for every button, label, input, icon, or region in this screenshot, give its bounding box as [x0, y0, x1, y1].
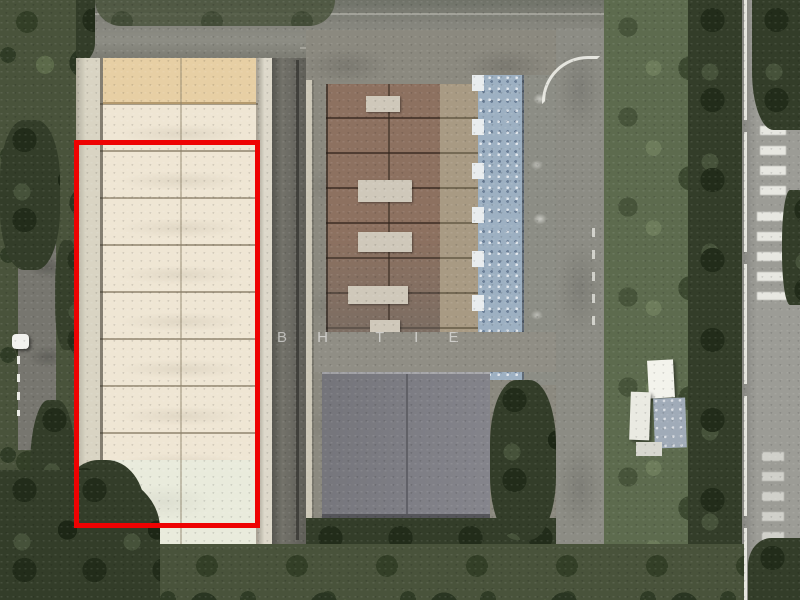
brown-warehouse-roof	[326, 84, 440, 332]
roadside-tree-line	[688, 0, 742, 600]
rooftop-unit	[358, 232, 412, 252]
road-edge-line	[744, 0, 747, 600]
alley-shadow-line	[296, 60, 299, 540]
small-building-roof	[647, 359, 675, 398]
rooftop-unit	[348, 286, 408, 304]
grass-strip	[604, 0, 690, 600]
road-paint-text	[760, 126, 786, 206]
tree-canopy	[748, 538, 800, 600]
lane-markings	[17, 356, 20, 416]
tree-clump	[0, 120, 60, 270]
gray-roof-building	[322, 372, 490, 520]
small-building-blue-roof	[653, 397, 687, 448]
alley-strip	[272, 58, 306, 548]
internal-road	[556, 28, 604, 600]
tree-canopy	[752, 0, 800, 130]
tree-clump	[490, 380, 556, 540]
white-car	[12, 334, 29, 349]
tree-canopy	[782, 190, 800, 305]
small-building-roof	[629, 392, 651, 441]
roof-center-seam	[406, 374, 408, 514]
east-apron	[258, 58, 272, 545]
watermark-text: B H T I E	[277, 329, 557, 351]
highlight-rectangle	[74, 140, 260, 528]
top-scrub	[95, 0, 335, 26]
central-compound	[306, 30, 556, 548]
rooftop-unit	[366, 96, 400, 112]
satellite-image: B H T I E	[0, 0, 800, 600]
road-dash-markings	[592, 228, 595, 338]
compound-wall	[306, 80, 314, 545]
rooftop-unit	[358, 180, 412, 202]
small-building-roof	[636, 442, 662, 456]
